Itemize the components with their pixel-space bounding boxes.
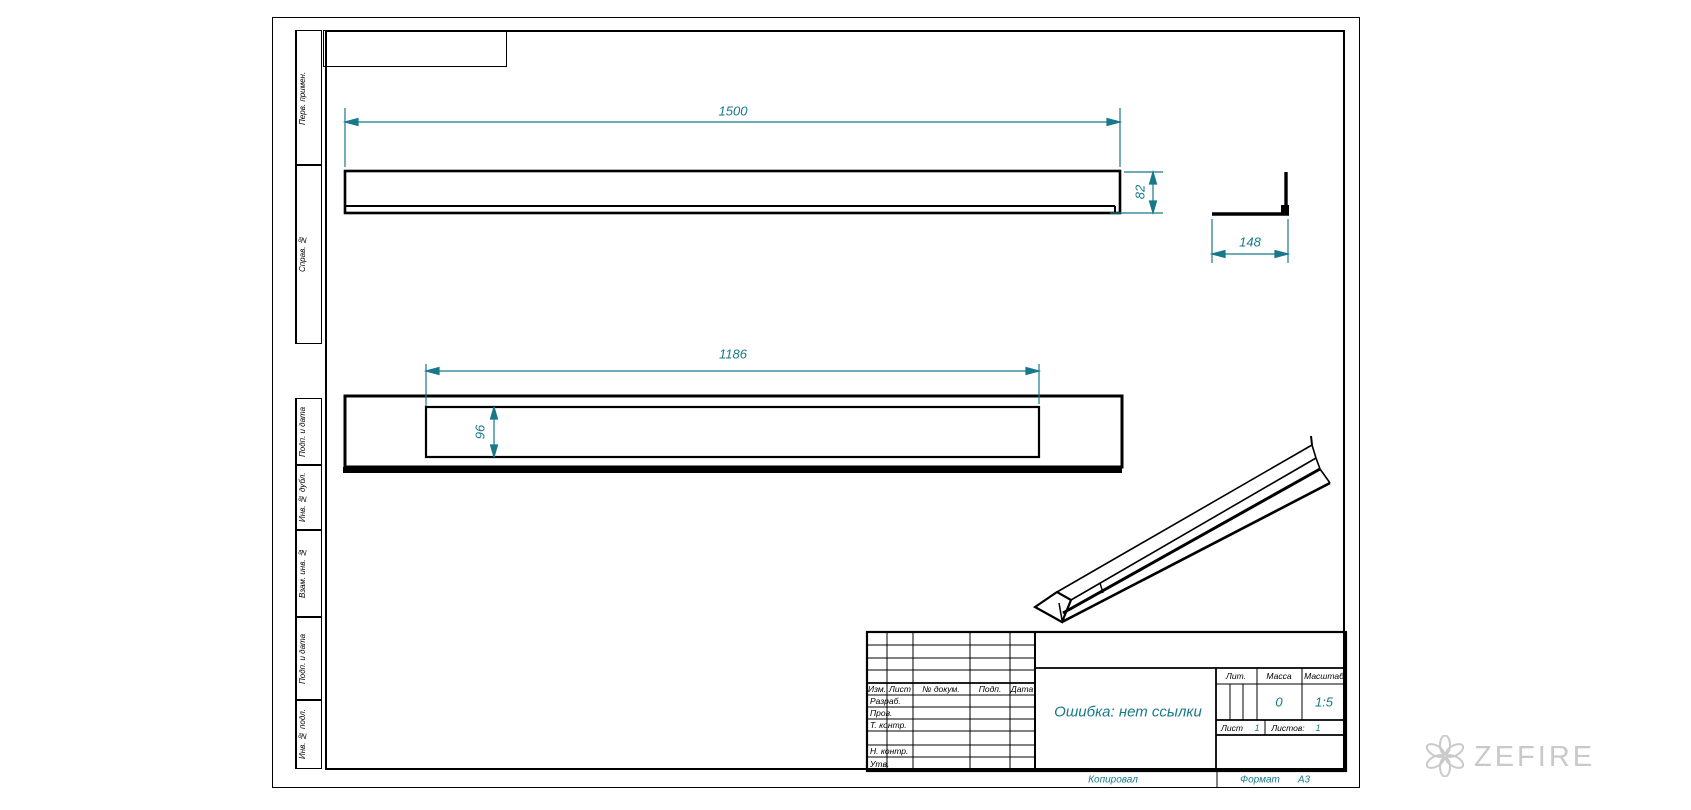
zefire-logo-icon [1424, 735, 1466, 777]
row-prov: Пров. [870, 708, 892, 718]
watermark-text: ZEFIRE [1474, 741, 1595, 774]
column-docnum: № докум. [922, 684, 959, 694]
sheets-label: Листов: [1271, 723, 1304, 733]
drawing-geometry [0, 0, 1691, 810]
top-view [343, 396, 1122, 470]
row-tkontr: Т. контр. [870, 720, 907, 730]
dimension-graphics [345, 108, 1288, 457]
dimension-side-height: 82 [1133, 185, 1148, 199]
isometric-view [1035, 436, 1330, 622]
row-nkontr: Н. контр. [870, 746, 908, 756]
dimension-slot-width: 96 [473, 425, 488, 439]
column-podp: Подп. [979, 684, 1002, 694]
title-block-grid [867, 632, 1346, 771]
footer-format-label: Формат [1240, 775, 1280, 786]
drawing-sheet-page: Перв. примен. Справ. № Подп. и дата Инв.… [0, 0, 1691, 810]
row-utv: Утв. [870, 759, 889, 769]
scale-value: 1:5 [1315, 695, 1333, 710]
lit-label: Лит. [1226, 671, 1246, 681]
document-name: Ошибка: нет ссылки [1054, 704, 1202, 721]
footer-copied: Копировал [1088, 775, 1138, 786]
sheet-label: Лист [1221, 723, 1243, 733]
side-view [345, 171, 1120, 213]
mass-value: 0 [1275, 695, 1282, 710]
dimension-side-length: 1500 [719, 104, 748, 119]
row-razrab: Разраб. [870, 696, 901, 706]
column-data: Дата [1011, 684, 1033, 694]
column-izm: Изм. [868, 684, 886, 694]
sheet-value: 1 [1254, 723, 1259, 733]
column-list: Лист [889, 684, 911, 694]
dimension-end-width: 148 [1239, 235, 1261, 250]
end-view [1212, 172, 1289, 215]
mass-label: Масса [1266, 671, 1291, 681]
scale-label: Масштаб [1304, 671, 1344, 681]
dimension-slot-length: 1186 [719, 347, 747, 362]
sheets-value: 1 [1315, 723, 1320, 733]
footer-format-value: А3 [1298, 775, 1310, 786]
